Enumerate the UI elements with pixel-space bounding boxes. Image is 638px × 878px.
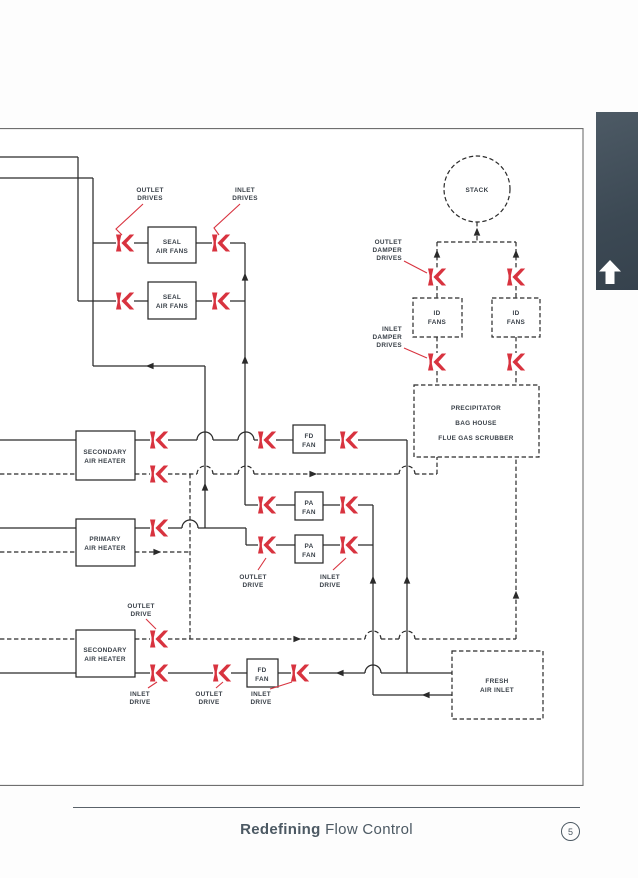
- fresh-air-inlet-label: AIR INLET: [480, 687, 514, 694]
- pa-fan-label: PA: [304, 500, 313, 507]
- outlet-drive-label: OUTLET: [195, 691, 222, 698]
- outlet-drives-label: OUTLET: [136, 187, 163, 194]
- precipitator-label: BAG HOUSE: [455, 420, 497, 427]
- seal-air-fans-label: AIR FANS: [156, 303, 189, 310]
- inlet-drives-label: DRIVES: [232, 195, 258, 202]
- inlet-drive-label: DRIVE: [250, 699, 271, 706]
- pa-fan-label: FAN: [302, 509, 316, 516]
- flow-control-diagram: OUTLET DRIVES INLET DRIVES OUTLET DAMPER…: [0, 128, 584, 786]
- precipitator-label: FLUE GAS SCRUBBER: [438, 435, 513, 442]
- outlet-drive-label: DRIVE: [198, 699, 219, 706]
- secondary-air-heater-label: SECONDARY: [83, 449, 127, 456]
- primary-air-heater-label: AIR HEATER: [84, 545, 126, 552]
- secondary-air-heater-label: AIR HEATER: [84, 458, 126, 465]
- inlet-drive-label: INLET: [130, 691, 150, 698]
- id-fans-box-right: [492, 298, 540, 337]
- id-fans-box-left: [413, 298, 462, 337]
- fd-fan-label: FAN: [302, 442, 316, 449]
- fresh-air-inlet-box: [452, 651, 543, 719]
- inlet-damper-drives-label: INLET: [382, 326, 402, 333]
- outlet-drive-label: DRIVE: [130, 611, 151, 618]
- fd-fan-label: FD: [304, 433, 313, 440]
- pa-fan-label: PA: [304, 543, 313, 550]
- outlet-drives-label: DRIVES: [137, 195, 163, 202]
- secondary-air-heater-label: AIR HEATER: [84, 656, 126, 663]
- outlet-drive-label: OUTLET: [127, 603, 154, 610]
- outlet-damper-drives-label: DAMPER: [373, 247, 403, 254]
- id-fans-label: FANS: [507, 319, 526, 326]
- fresh-air-inlet-label: FRESH: [485, 678, 508, 685]
- inlet-drives-label: INLET: [235, 187, 255, 194]
- fd-fan-label: FD: [257, 667, 266, 674]
- outlet-drive-label: OUTLET: [239, 574, 266, 581]
- inlet-drive-label: DRIVE: [129, 699, 150, 706]
- id-fans-label: FANS: [428, 319, 447, 326]
- up-arrow-icon: [597, 258, 623, 286]
- inlet-drive-label: INLET: [251, 691, 271, 698]
- fd-fan-label: FAN: [255, 676, 269, 683]
- stack-label: STACK: [465, 187, 488, 194]
- footer-title: Redefining Flow Control: [73, 821, 580, 838]
- primary-air-heater-label: PRIMARY: [89, 536, 121, 543]
- inlet-drive-label: INLET: [320, 574, 340, 581]
- precipitator-label: PRECIPITATOR: [451, 405, 501, 412]
- outlet-damper-drives-label: DRIVES: [376, 255, 402, 262]
- id-fans-label: ID: [513, 310, 520, 317]
- seal-air-fans-label: AIR FANS: [156, 248, 189, 255]
- inlet-damper-drives-label: DRIVES: [376, 342, 402, 349]
- inlet-drive-label: DRIVE: [319, 582, 340, 589]
- footer-brand-regular: Flow Control: [325, 821, 413, 838]
- footer-rule: [73, 807, 580, 808]
- id-fans-label: ID: [434, 310, 441, 317]
- secondary-air-heater-label: SECONDARY: [83, 647, 127, 654]
- page-number-badge: 5: [561, 822, 580, 841]
- inlet-damper-drives-label: DAMPER: [373, 334, 403, 341]
- seal-air-fans-label: SEAL: [163, 239, 181, 246]
- side-tab: [596, 112, 638, 290]
- outlet-drive-label: DRIVE: [242, 582, 263, 589]
- seal-air-fans-label: SEAL: [163, 294, 181, 301]
- pa-fan-label: FAN: [302, 552, 316, 559]
- footer-brand-bold: Redefining: [240, 821, 321, 838]
- outlet-damper-drives-label: OUTLET: [375, 239, 402, 246]
